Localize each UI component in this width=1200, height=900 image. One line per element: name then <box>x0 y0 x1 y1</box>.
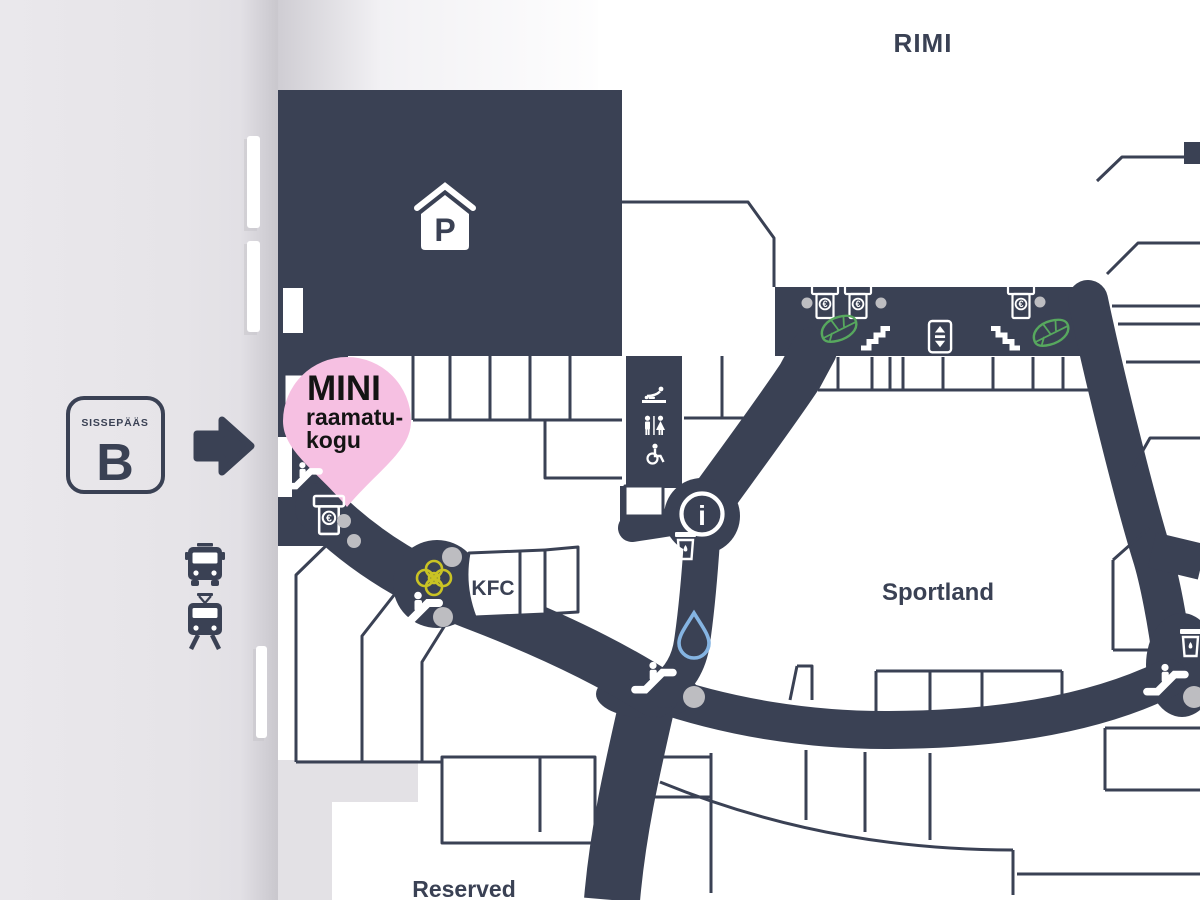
mall-map[interactable]: € <box>0 0 1200 900</box>
pin-subtitle-2: kogu <box>306 427 361 453</box>
entrance-sign-letter: B <box>96 434 134 492</box>
svg-text:P: P <box>434 212 455 248</box>
label-reserved: Reserved <box>412 876 516 900</box>
label-kfc[interactable]: KFC <box>471 577 514 600</box>
floorplan-svg[interactable]: € <box>0 0 1200 900</box>
entrance-sign-label: SISSEPÄÄS <box>81 416 148 429</box>
svg-text:i: i <box>698 500 706 531</box>
pin-title: MINI <box>307 369 381 408</box>
label-sportland[interactable]: Sportland <box>882 579 994 606</box>
label-rimi[interactable]: RIMI <box>894 28 953 58</box>
bottom-left-outside <box>278 760 332 900</box>
top-white-column <box>598 0 622 90</box>
bus-icon <box>185 543 225 586</box>
top-outside-strip <box>278 0 622 90</box>
south-corridor <box>612 700 648 900</box>
bottom-left-outside-step <box>332 760 418 802</box>
